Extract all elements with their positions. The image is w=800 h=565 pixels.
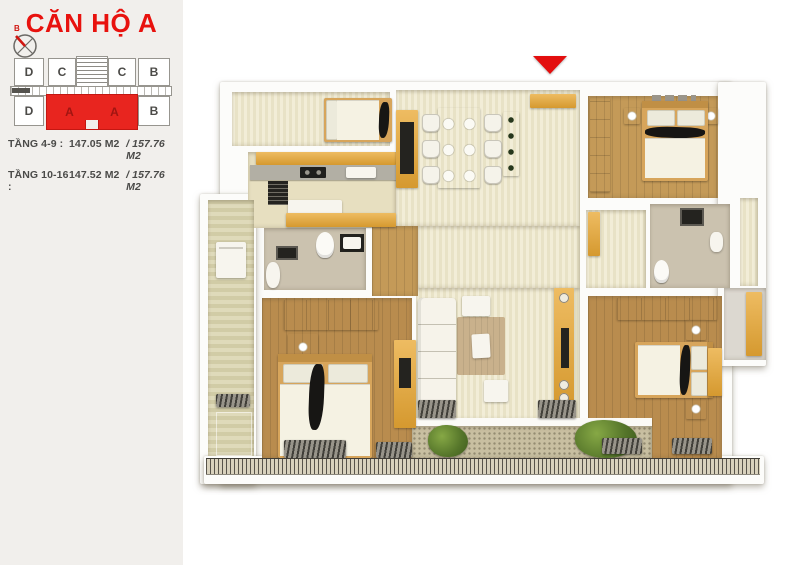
info-panel: CĂN HỘ A B D C C B D A A B TẦNG 4-9 : 14…	[0, 0, 183, 565]
window-blind	[672, 438, 712, 454]
unit-label: D	[25, 65, 34, 79]
ac-ledge-wood	[746, 292, 762, 356]
toilet	[316, 232, 334, 258]
toilet	[654, 260, 669, 283]
unit-label: B	[150, 104, 159, 118]
building-key-plan: D C C B D A A B	[4, 54, 178, 136]
wardrobe	[617, 298, 717, 320]
kitchen-island-counter	[286, 213, 396, 227]
dining-table	[438, 108, 480, 188]
double-bed	[635, 342, 713, 398]
bed-duvet	[645, 138, 705, 178]
floor-range-label: TẦNG 4-9 :	[8, 138, 69, 150]
ottoman	[484, 380, 508, 402]
unit-label: C	[58, 65, 67, 79]
side-hallway-floor	[740, 198, 758, 286]
wardrobe	[590, 98, 610, 192]
unit-label: B	[150, 65, 159, 79]
dresser-mirror	[399, 358, 411, 388]
console-table	[503, 112, 519, 176]
coffee-table	[471, 334, 490, 359]
bed-accent-throw	[378, 102, 389, 138]
net-area-value: 147.52 M2	[69, 169, 126, 181]
floor-grate	[216, 394, 250, 407]
gross-area-value: / 157.76 M2	[126, 169, 180, 193]
key-plan-unit-c-top-right: C	[108, 58, 136, 86]
shower	[680, 208, 704, 226]
key-plan-unit-d-bottom: D	[14, 96, 44, 126]
floor-plan-render	[200, 82, 768, 496]
kitchen-upper-cabinet	[256, 152, 396, 165]
bathtub	[266, 262, 280, 288]
dining-chair	[484, 166, 502, 184]
compass-north-label: B	[14, 24, 20, 33]
fridge-door	[400, 122, 414, 174]
single-bed	[324, 98, 392, 142]
unit-label: D	[25, 104, 34, 118]
dining-chair	[484, 114, 502, 132]
floor-range-label: TẦNG 10-16 :	[8, 169, 69, 193]
hall-floor	[418, 226, 580, 288]
dining-chair	[422, 114, 440, 132]
kitchen-sink	[346, 167, 376, 178]
rug	[457, 317, 505, 375]
dining-hall-floor	[396, 90, 580, 226]
unit-label: C	[118, 65, 127, 79]
nightstand	[686, 320, 706, 340]
key-plan-unit-c-top-left: C	[48, 58, 76, 86]
fridge-cabinet	[396, 110, 418, 188]
ottoman	[462, 296, 490, 316]
key-plan-unit-b-top: B	[138, 58, 170, 86]
dressing-cabinet	[588, 212, 600, 256]
sofa	[418, 298, 456, 406]
key-plan-unit-b-bottom: B	[138, 96, 170, 126]
dresser	[708, 348, 722, 396]
window-blind	[284, 440, 346, 458]
key-plan-unit-a-highlight: A A	[46, 94, 138, 130]
bed-duvet	[337, 100, 379, 140]
key-plan-lobby	[12, 88, 30, 93]
key-plan-core	[76, 56, 108, 88]
dining-chair	[484, 140, 502, 158]
sink	[710, 232, 723, 252]
dining-chair	[422, 166, 440, 184]
window-blind	[376, 442, 412, 458]
pillow	[328, 364, 368, 383]
corridor-floor	[372, 226, 418, 296]
tv-cabinet	[554, 288, 574, 406]
bed-accent-throw	[679, 345, 691, 395]
balcony-railing	[206, 458, 760, 475]
bed-duvet	[638, 345, 680, 395]
shower	[276, 246, 298, 260]
nightstand	[624, 108, 640, 124]
floor-pattern	[216, 412, 252, 456]
wall-cabinet	[530, 94, 576, 108]
double-bed	[642, 101, 708, 181]
wardrobe	[284, 300, 378, 330]
headboard	[278, 354, 372, 362]
pillow	[647, 110, 675, 126]
stove	[300, 167, 326, 178]
window-blind	[418, 400, 456, 418]
speaker	[559, 293, 569, 303]
key-plan-notch	[85, 120, 99, 129]
area-line-1: TẦNG 4-9 : 147.05 M2 / 157.76 M2	[8, 138, 180, 162]
washing-machine	[216, 242, 246, 278]
plant	[428, 425, 468, 457]
kitchen-appliance	[268, 181, 288, 205]
speaker	[559, 380, 569, 390]
sink-basin	[343, 237, 361, 249]
nightstand	[686, 399, 706, 419]
window-blind	[602, 438, 642, 454]
dresser	[394, 340, 416, 428]
area-line-2: TẦNG 10-16 : 147.52 M2 / 157.76 M2	[8, 169, 180, 193]
area-summary: TẦNG 4-9 : 147.05 M2 / 157.76 M2 TẦNG 10…	[8, 138, 180, 200]
tv-screen	[561, 328, 569, 368]
gross-area-value: / 157.76 M2	[126, 138, 180, 162]
key-plan-unit-d-top: D	[14, 58, 44, 86]
pillow	[677, 110, 705, 126]
headboard	[642, 101, 708, 108]
net-area-value: 147.05 M2	[69, 138, 126, 150]
dining-chair	[422, 140, 440, 158]
window-blind	[538, 400, 576, 418]
entrance-arrow-icon	[533, 56, 567, 74]
washer-lid-line	[219, 247, 243, 249]
sink	[340, 234, 364, 252]
